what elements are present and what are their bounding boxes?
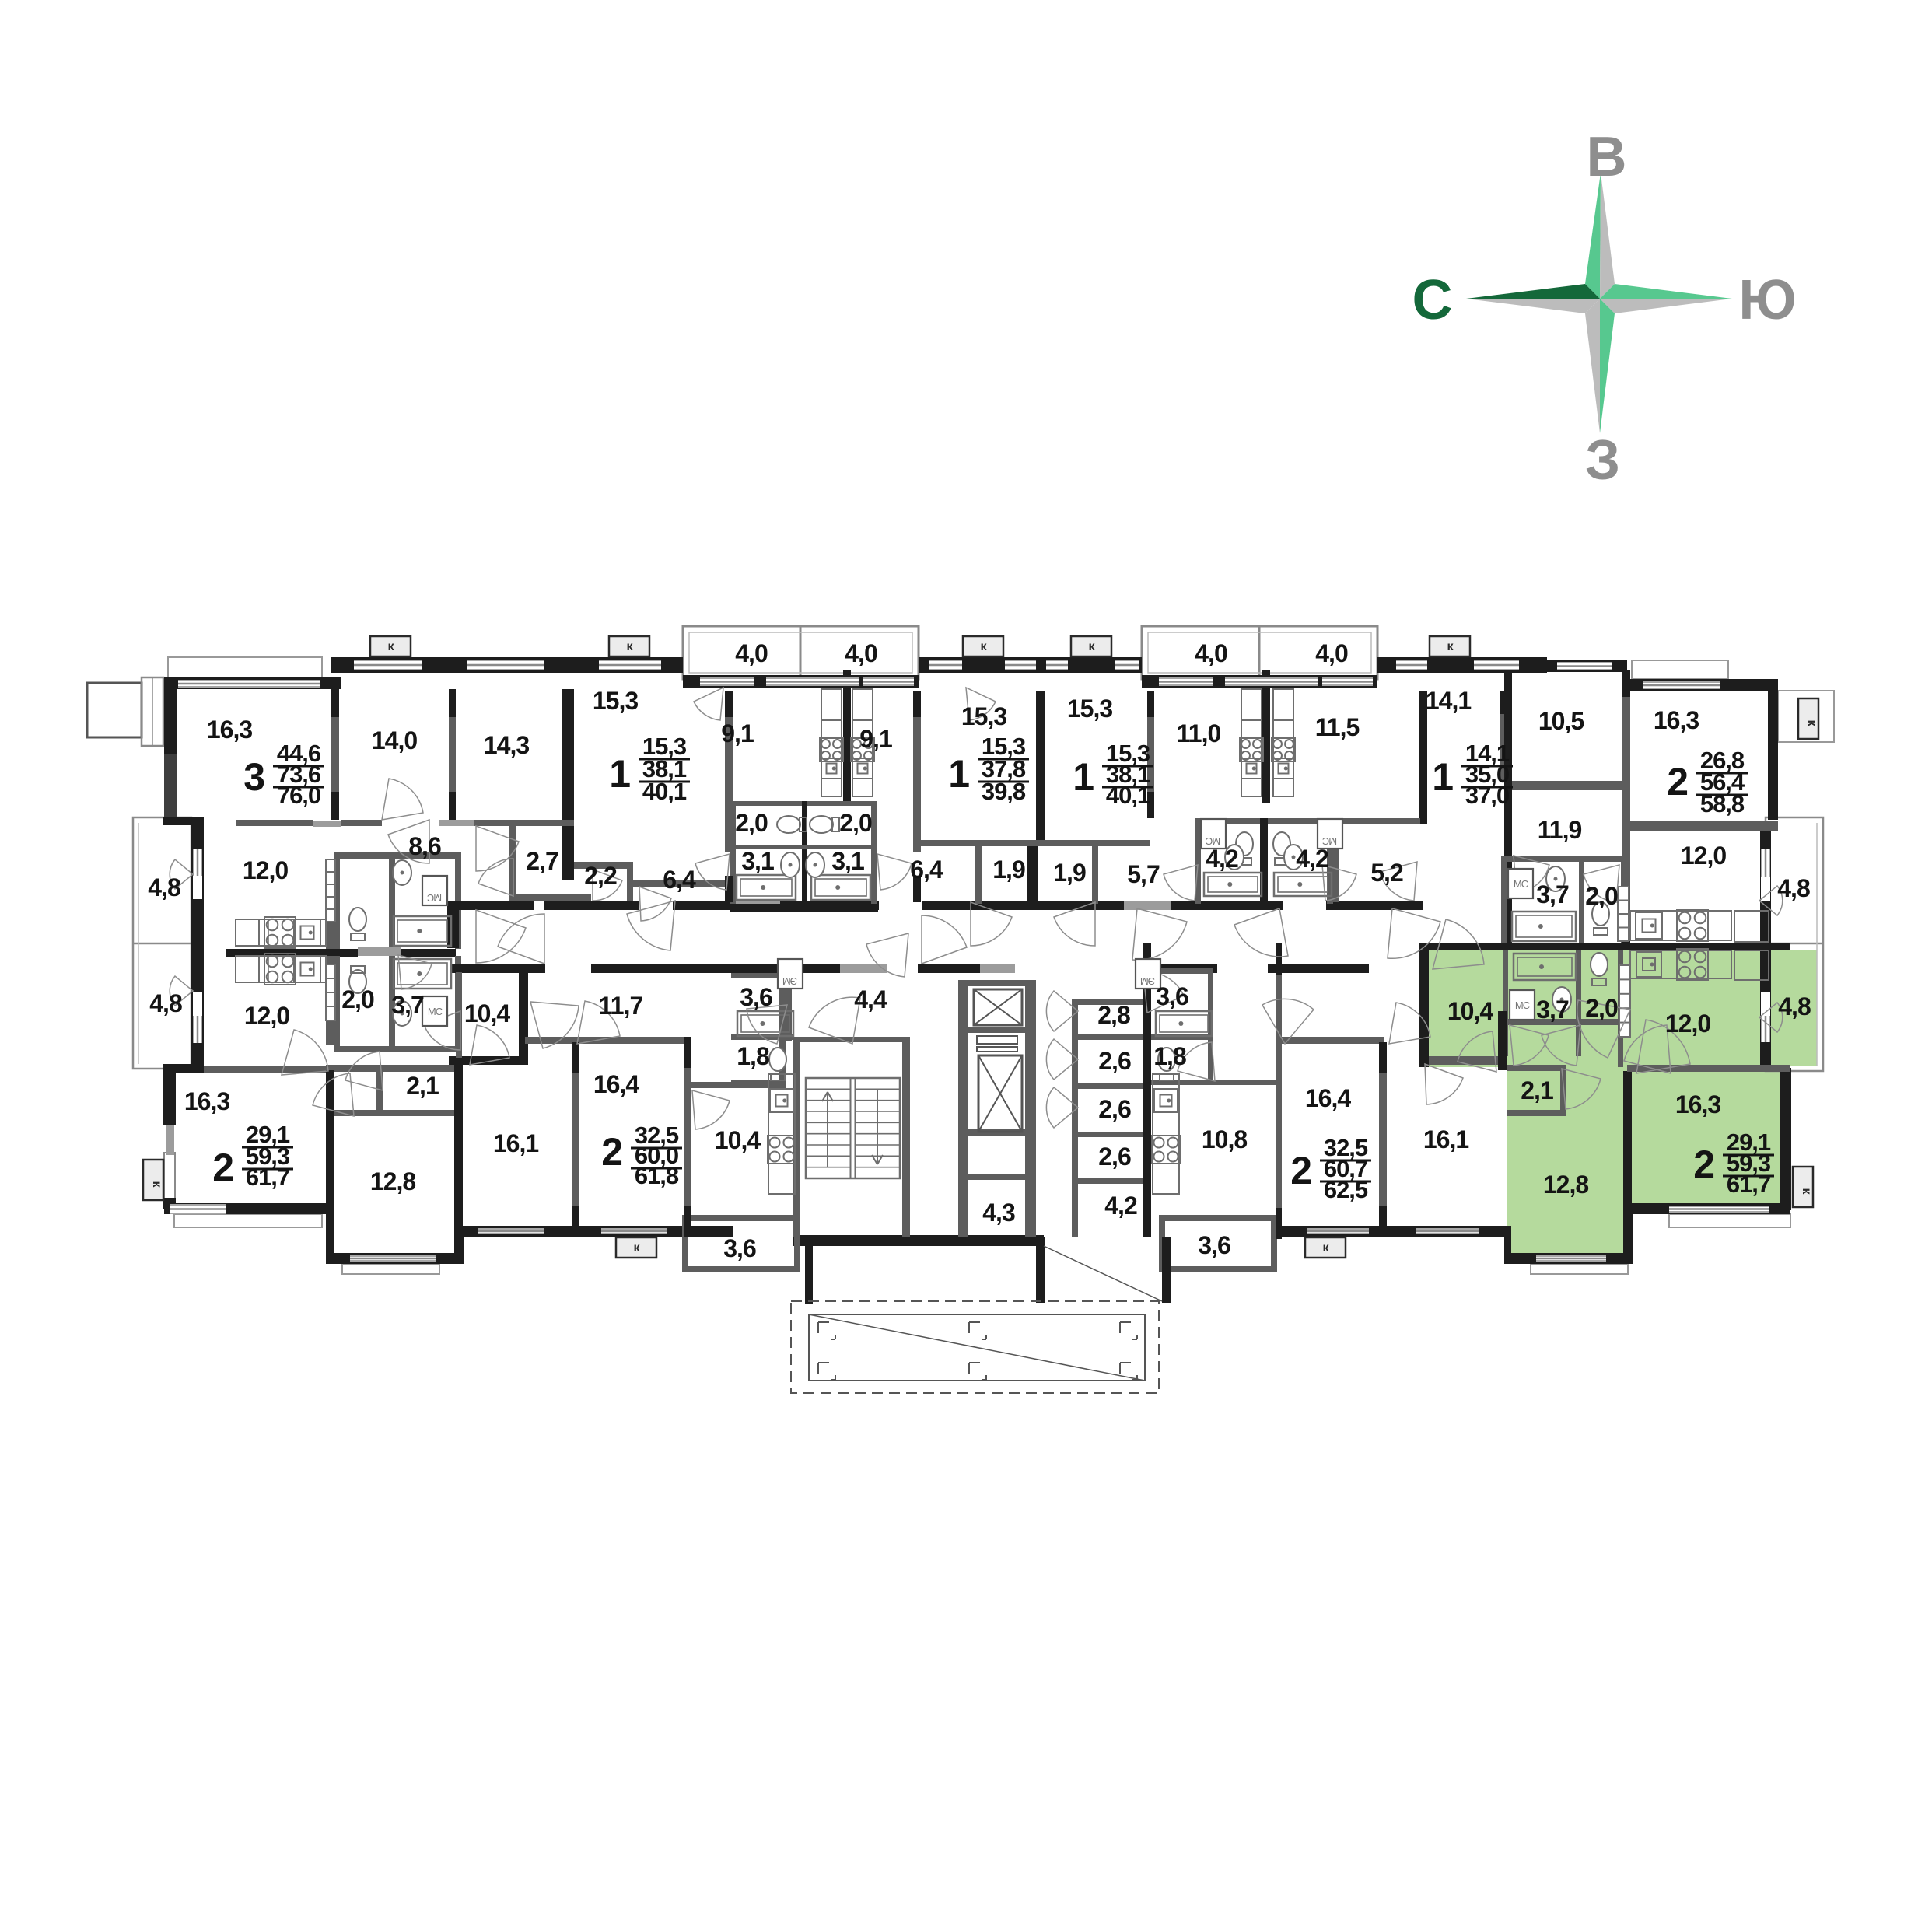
svg-text:10,4: 10,4	[715, 1126, 761, 1154]
svg-text:1: 1	[609, 752, 630, 796]
svg-text:9,1: 9,1	[859, 725, 892, 753]
svg-text:1,9: 1,9	[992, 856, 1025, 884]
svg-text:1,9: 1,9	[1053, 859, 1086, 887]
svg-text:11,5: 11,5	[1315, 713, 1360, 741]
svg-text:3,7: 3,7	[1536, 880, 1569, 908]
svg-text:ЭМ: ЭМ	[1141, 975, 1155, 987]
svg-text:61,7: 61,7	[246, 1164, 289, 1191]
svg-text:2,0: 2,0	[341, 985, 374, 1013]
svg-text:76,0: 76,0	[277, 782, 320, 809]
svg-text:10,4: 10,4	[464, 999, 510, 1027]
svg-text:14,1: 14,1	[1426, 687, 1471, 715]
svg-text:9,1: 9,1	[721, 719, 754, 747]
svg-text:4,2: 4,2	[1296, 845, 1328, 873]
svg-text:1: 1	[1432, 755, 1453, 799]
svg-text:16,4: 16,4	[593, 1070, 639, 1098]
svg-text:2,1: 2,1	[406, 1072, 439, 1100]
svg-text:4,8: 4,8	[1777, 874, 1810, 902]
svg-text:4,0: 4,0	[735, 639, 768, 667]
svg-text:61,8: 61,8	[635, 1162, 679, 1189]
svg-text:10,4: 10,4	[1447, 997, 1493, 1025]
svg-text:3,6: 3,6	[1156, 982, 1188, 1010]
svg-text:МС: МС	[1515, 999, 1530, 1011]
svg-text:3,6: 3,6	[740, 983, 772, 1011]
svg-text:2,0: 2,0	[1585, 994, 1618, 1022]
svg-text:2,6: 2,6	[1098, 1095, 1131, 1123]
svg-text:16,3: 16,3	[1654, 706, 1699, 734]
svg-text:12,0: 12,0	[243, 856, 288, 884]
svg-text:12,0: 12,0	[244, 1002, 289, 1030]
svg-text:1,8: 1,8	[737, 1042, 769, 1070]
svg-text:С: С	[1412, 269, 1452, 331]
svg-text:4,4: 4,4	[854, 985, 887, 1013]
svg-text:2,1: 2,1	[1521, 1076, 1553, 1104]
svg-text:14,0: 14,0	[372, 726, 417, 754]
svg-text:2,6: 2,6	[1098, 1143, 1131, 1171]
svg-text:10,5: 10,5	[1538, 707, 1584, 735]
svg-text:3,6: 3,6	[1198, 1231, 1230, 1259]
svg-text:2,0: 2,0	[839, 809, 872, 837]
svg-text:2,0: 2,0	[735, 809, 768, 837]
svg-text:6,4: 6,4	[910, 856, 943, 884]
svg-text:4,2: 4,2	[1104, 1192, 1137, 1220]
svg-text:16,1: 16,1	[493, 1129, 538, 1157]
svg-text:2,8: 2,8	[1097, 1001, 1130, 1029]
svg-text:6,4: 6,4	[663, 866, 696, 894]
svg-text:4,3: 4,3	[982, 1199, 1015, 1227]
svg-text:2: 2	[601, 1130, 622, 1174]
svg-text:5,7: 5,7	[1127, 860, 1160, 888]
svg-text:11,7: 11,7	[599, 992, 643, 1020]
svg-text:Ю: Ю	[1738, 269, 1795, 331]
svg-text:8,6: 8,6	[408, 832, 441, 860]
svg-text:12,8: 12,8	[370, 1167, 415, 1195]
svg-text:15,3: 15,3	[1067, 695, 1112, 723]
svg-text:3,1: 3,1	[831, 847, 864, 875]
svg-text:4,0: 4,0	[1315, 639, 1348, 667]
svg-text:4,8: 4,8	[1778, 992, 1811, 1020]
svg-text:3,6: 3,6	[723, 1234, 756, 1262]
svg-text:МС: МС	[427, 892, 442, 904]
svg-text:3,7: 3,7	[1536, 996, 1569, 1024]
svg-text:4,0: 4,0	[845, 639, 877, 667]
svg-text:2,0: 2,0	[1585, 882, 1618, 910]
svg-text:10,8: 10,8	[1202, 1125, 1247, 1153]
svg-text:2,6: 2,6	[1098, 1047, 1131, 1075]
svg-text:15,3: 15,3	[961, 702, 1006, 730]
svg-text:16,3: 16,3	[184, 1087, 229, 1115]
svg-text:МС: МС	[428, 1006, 443, 1017]
svg-text:12,0: 12,0	[1681, 842, 1726, 870]
svg-text:40,1: 40,1	[1106, 782, 1150, 809]
svg-text:2: 2	[1290, 1149, 1311, 1192]
svg-text:1: 1	[948, 752, 969, 796]
svg-text:11,9: 11,9	[1538, 816, 1582, 844]
svg-text:4,8: 4,8	[149, 989, 182, 1017]
svg-text:16,4: 16,4	[1305, 1084, 1351, 1112]
svg-text:37,0: 37,0	[1465, 782, 1509, 809]
svg-text:3,1: 3,1	[741, 847, 774, 875]
svg-text:16,3: 16,3	[207, 716, 252, 744]
svg-text:4,2: 4,2	[1206, 845, 1238, 873]
svg-text:11,0: 11,0	[1177, 719, 1221, 747]
svg-text:16,3: 16,3	[1675, 1090, 1720, 1118]
svg-text:1: 1	[1073, 755, 1094, 799]
svg-text:2,7: 2,7	[526, 847, 558, 875]
svg-text:З: З	[1585, 429, 1619, 492]
svg-text:4,0: 4,0	[1195, 639, 1227, 667]
svg-text:2,2: 2,2	[584, 862, 617, 890]
svg-text:МС: МС	[1514, 878, 1528, 890]
svg-text:2: 2	[1667, 760, 1688, 803]
svg-text:3,7: 3,7	[391, 991, 424, 1019]
svg-text:12,0: 12,0	[1665, 1010, 1710, 1038]
svg-text:61,7: 61,7	[1727, 1171, 1770, 1198]
svg-text:2: 2	[1693, 1143, 1714, 1186]
svg-text:62,5: 62,5	[1324, 1176, 1368, 1203]
svg-text:12,8: 12,8	[1543, 1171, 1588, 1199]
svg-text:5,2: 5,2	[1370, 859, 1403, 887]
svg-text:1,8: 1,8	[1153, 1042, 1186, 1070]
svg-text:3: 3	[243, 755, 264, 799]
svg-text:В: В	[1587, 126, 1626, 188]
svg-text:2: 2	[212, 1146, 233, 1189]
svg-text:4,8: 4,8	[148, 873, 180, 901]
svg-text:14,3: 14,3	[484, 731, 529, 759]
svg-text:15,3: 15,3	[593, 687, 638, 715]
svg-text:ЭМ: ЭМ	[783, 975, 797, 987]
svg-text:16,1: 16,1	[1423, 1125, 1468, 1153]
